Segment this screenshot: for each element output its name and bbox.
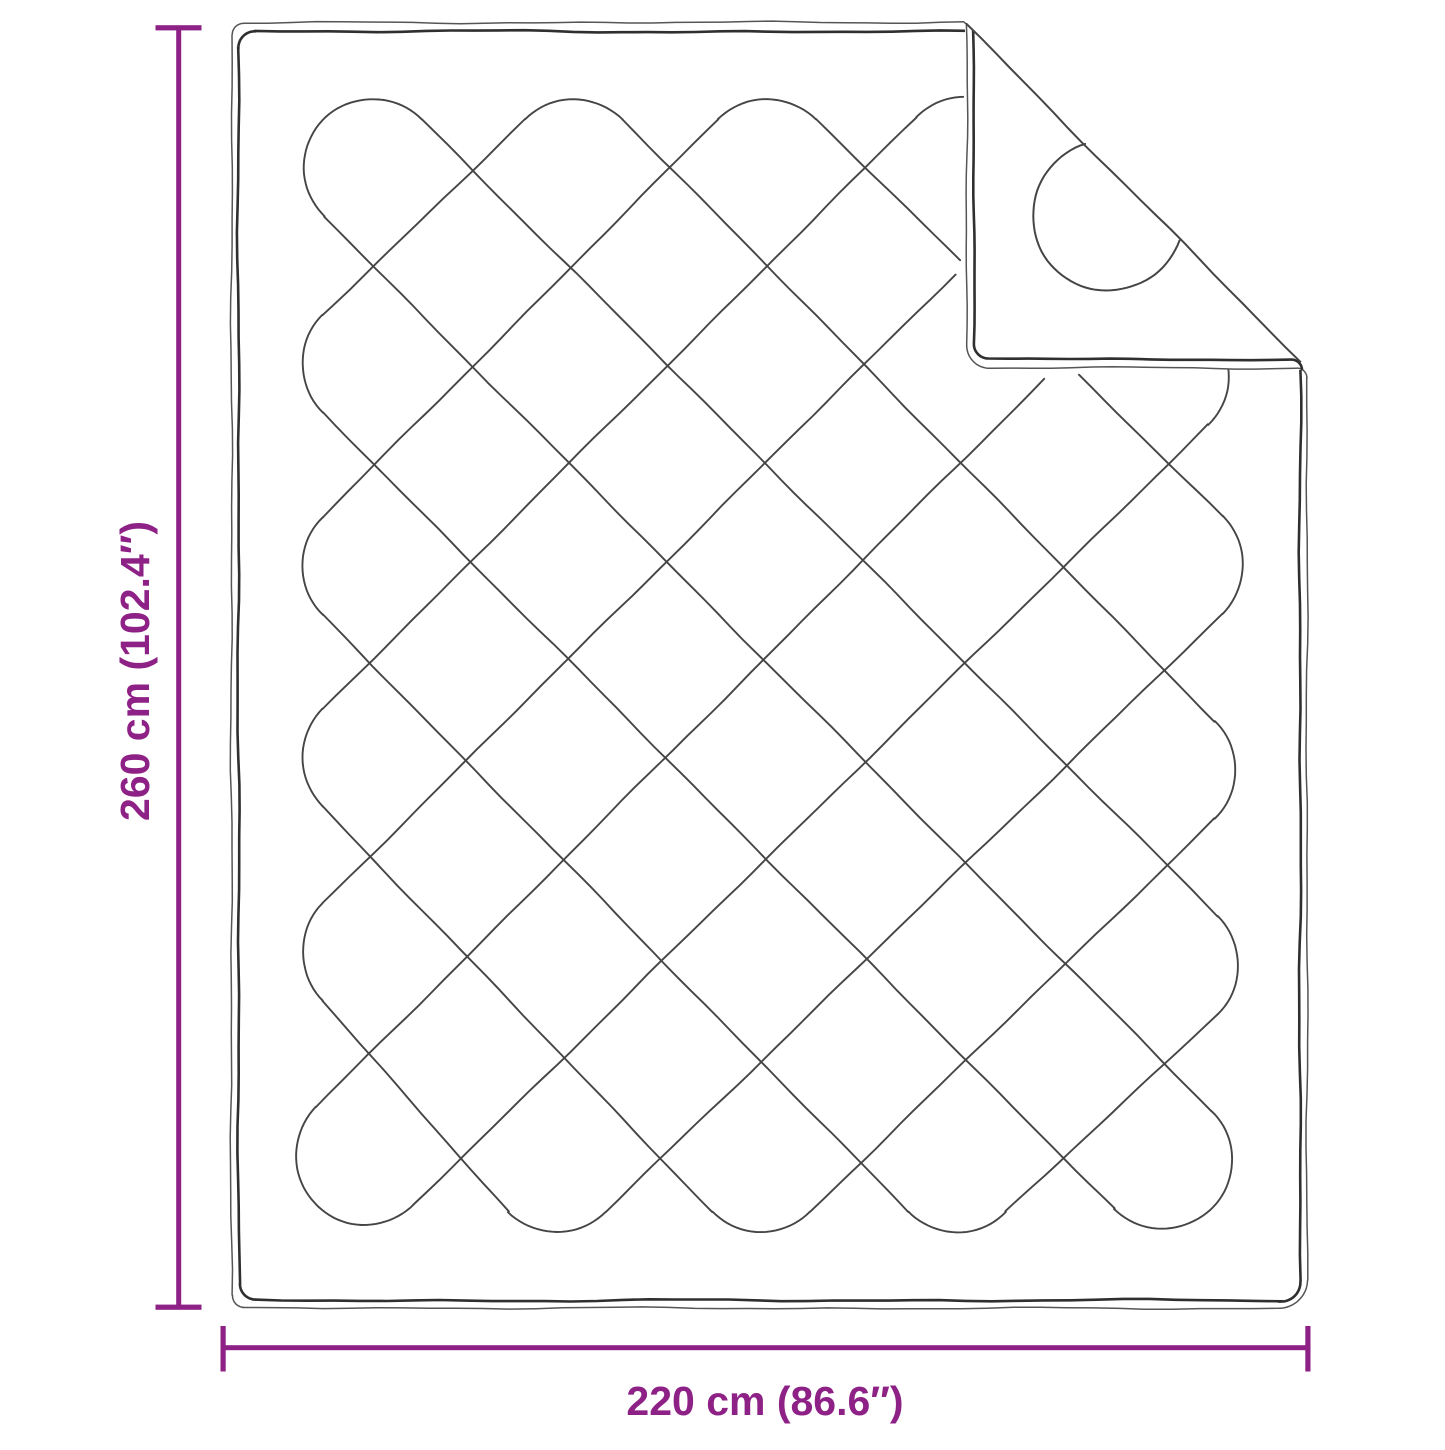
svg-text:220 cm (86.6″): 220 cm (86.6″) — [626, 1378, 903, 1424]
svg-text:260 cm (102.4″): 260 cm (102.4″) — [112, 521, 158, 821]
